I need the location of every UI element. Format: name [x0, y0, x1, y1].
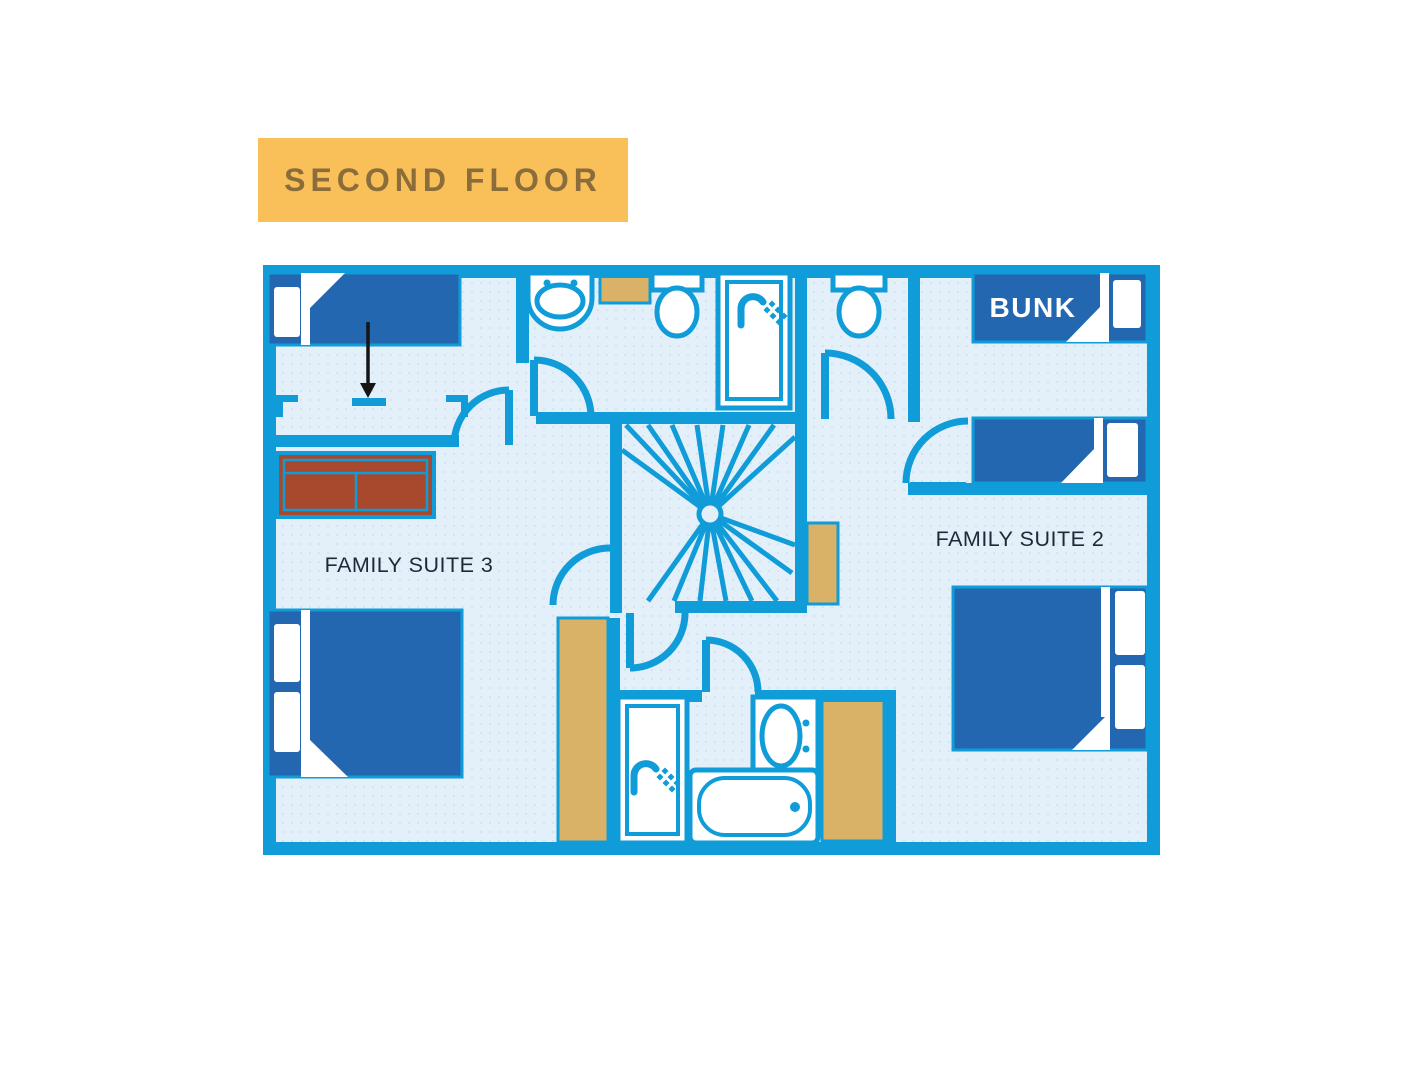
stair-cabinet: [807, 523, 838, 604]
wall-bath1-right: [795, 275, 807, 417]
outer-wall-right: [1147, 265, 1160, 855]
wardrobe-left: [558, 618, 608, 842]
double-bed-suite2: [953, 587, 1147, 750]
pillow: [1113, 280, 1141, 328]
pillow: [1115, 665, 1145, 729]
shower: [618, 697, 687, 843]
sofa: [277, 453, 434, 517]
bathtub: [690, 770, 818, 843]
wall-wc-right: [908, 275, 920, 422]
bunk-room-label: BUNK: [990, 292, 1077, 323]
toilet: [652, 273, 702, 336]
suite3-label: FAMILY SUITE 3: [325, 553, 494, 577]
tap: [544, 280, 551, 287]
wall-bath2-right: [884, 690, 896, 848]
floor-title: SECOND FLOOR: [284, 162, 602, 199]
wardrobe-right: [822, 697, 884, 841]
wall-bath1-bottom: [536, 412, 807, 424]
pillow: [274, 624, 300, 682]
wall-stair-left: [610, 413, 622, 613]
pillow: [274, 692, 300, 752]
balcony-stub-center: [352, 398, 386, 406]
tap: [803, 720, 810, 727]
floorplan: BUNK: [263, 265, 1160, 855]
wall-stair-right: [795, 413, 807, 613]
staircase-center-post: [699, 503, 721, 525]
wall-stair-bottom: [675, 601, 807, 613]
pillow: [274, 287, 300, 337]
bunk-bed: BUNK: [973, 273, 1147, 342]
single-bed-suite3: [268, 273, 460, 345]
sink: [753, 697, 818, 775]
shelf-cabinet: [600, 275, 650, 303]
single-bed-bunk-room: [973, 418, 1147, 483]
suite2-label: FAMILY SUITE 2: [936, 527, 1105, 551]
double-bed-suite3: [268, 610, 462, 777]
wall-suite3-partition: [263, 435, 459, 447]
floor-title-banner: SECOND FLOOR: [258, 138, 628, 222]
tap: [803, 746, 810, 753]
sink: [528, 273, 592, 329]
pillow: [1107, 423, 1138, 477]
shower: [718, 273, 790, 408]
balcony-stub-left-h: [276, 395, 298, 402]
pillow: [1115, 591, 1145, 655]
wc-toilet: [833, 273, 885, 336]
tap: [571, 280, 578, 287]
drain: [790, 802, 800, 812]
